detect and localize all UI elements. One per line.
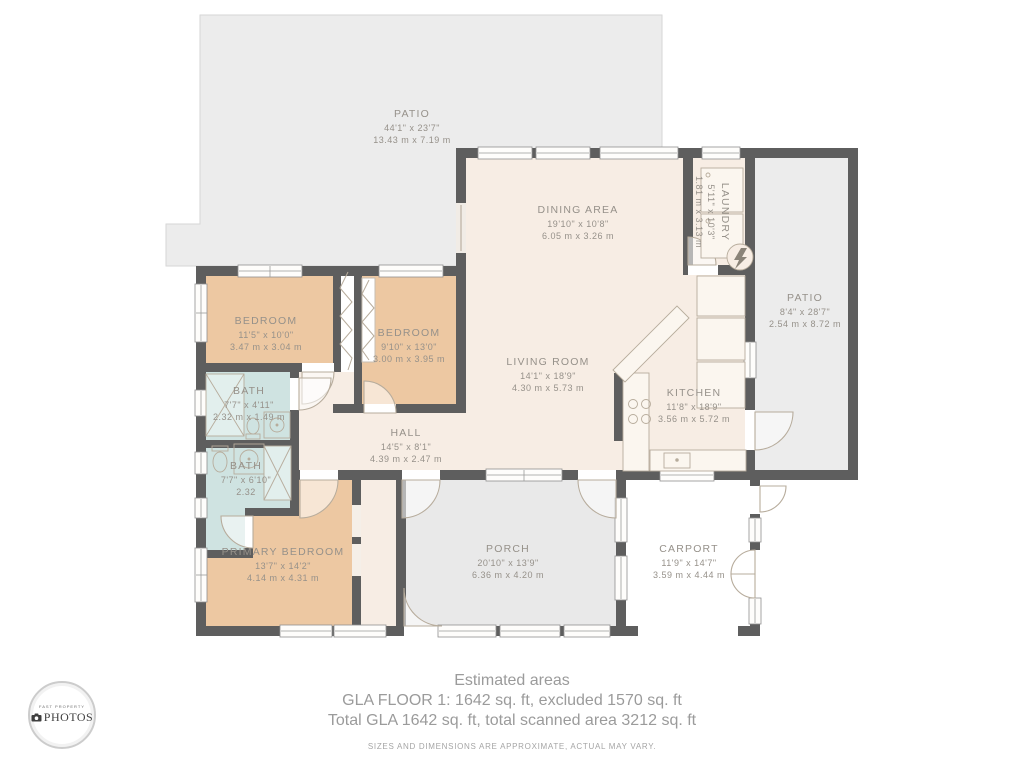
room-label-primary-bedroom: PRIMARY BEDROOM 13'7" x 14'2" 4.14 m x 4… <box>222 545 345 585</box>
footer-title: Estimated areas <box>0 672 1024 690</box>
room-label-porch: PORCH 20'10" x 13'9" 6.36 m x 4.20 m <box>472 542 544 582</box>
footer-disclaimer: SIZES AND DIMENSIONS ARE APPROXIMATE, AC… <box>0 742 1024 751</box>
brand-main-text: PHOTOS <box>44 710 93 725</box>
room-label-bath-1: BATH 7'7" x 4'11" 2.32 m x 1.49 m <box>213 384 285 424</box>
room-label-carport: CARPORT 11'9" x 14'7" 3.59 m x 4.44 m <box>653 542 725 582</box>
room-label-patio-top: PATIO 44'1" x 23'7" 13.43 m x 7.19 m <box>373 107 451 147</box>
room-label-kitchen: KITCHEN 11'8" x 18'9" 3.56 m x 5.72 m <box>658 386 730 426</box>
estimated-areas-footer: Estimated areas GLA FLOOR 1: 1642 sq. ft… <box>0 672 1024 751</box>
room-label-living-room: LIVING ROOM 14'1" x 18'9" 4.30 m x 5.73 … <box>506 355 589 395</box>
footer-gla-line: GLA FLOOR 1: 1642 sq. ft, excluded 1570 … <box>0 692 1024 710</box>
logo-ring: FAST PROPERTY PHOTOS <box>28 681 96 749</box>
room-label-laundry: LAUNDRY 5'11" x 10'3" 1.81 m x 3.13 m <box>692 176 732 248</box>
room-label-bedroom-1: BEDROOM 11'5" x 10'0" 3.47 m x 3.04 m <box>230 314 302 354</box>
footer-total-line: Total GLA 1642 sq. ft, total scanned are… <box>0 712 1024 730</box>
room-label-dining-area: DINING AREA 19'10" x 10'8" 6.05 m x 3.26… <box>538 203 619 243</box>
room-label-bedroom-2: BEDROOM 9'10" x 13'0" 3.00 m x 3.95 m <box>373 326 445 366</box>
floor-plan-page: PATIO 44'1" x 23'7" 13.43 m x 7.19 m DIN… <box>0 0 1024 768</box>
brand-logo: FAST PROPERTY PHOTOS <box>28 681 96 749</box>
room-label-bath-2: BATH 7'7" x 6'10" 2.32 <box>221 459 271 499</box>
room-label-patio-right: PATIO 8'4" x 28'7" 2.54 m x 8.72 m <box>769 291 841 331</box>
camera-icon <box>31 709 42 727</box>
room-label-hall: HALL 14'5" x 8'1" 4.39 m x 2.47 m <box>370 426 442 466</box>
